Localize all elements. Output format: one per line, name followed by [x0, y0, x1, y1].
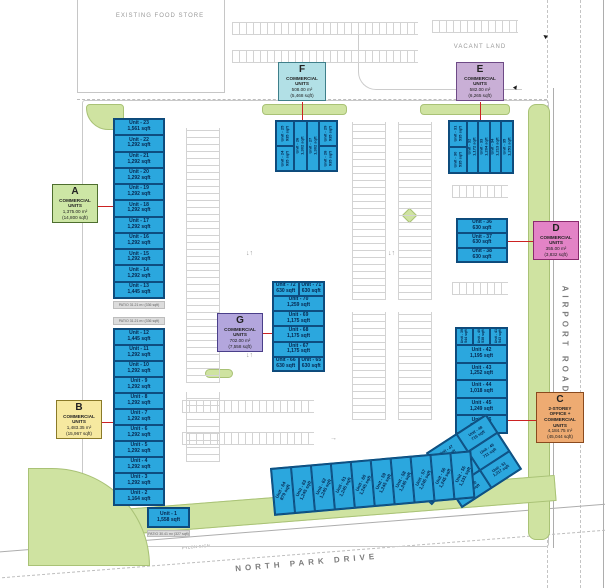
unit-cell: Unit - 66630 sqft [273, 357, 299, 371]
unit-cell: Unit - 38630 sqft [457, 248, 507, 262]
unit-area: 543 sqft [499, 329, 503, 343]
unit-cell: Unit - 351,251 sqft [501, 121, 513, 173]
unit-area: 1,175 sqft [287, 334, 310, 340]
building-e: Unit - 31535 sqft Unit - 30535 sqft Unit… [448, 120, 514, 174]
building-d: Unit - 36630 sqft Unit - 37630 sqft Unit… [456, 218, 508, 263]
legend-block-c: C 2-STOREY OFFICE + COMMERCIAL UNITS 4,1… [536, 392, 584, 443]
building-f: Unit - 25935 sqft Unit - 24935 sqft Unit… [275, 120, 338, 172]
unit-area: 1,164 sqft [127, 497, 150, 503]
unit-cell: Unit - 451,249 sqft [456, 398, 507, 416]
unit-cell: Unit - 19 1,292 sqft [114, 184, 164, 200]
unit-area: 630 sqft [302, 364, 321, 370]
unit-cell: Unit - 341,213 sqft [490, 121, 502, 173]
unit-cell: Unit - 331,204 sqft [478, 121, 490, 173]
unit-cell: Unit - 71630 sqft [299, 282, 325, 296]
parking-row [352, 312, 386, 420]
legend-block-f: F COMMERCIAL UNITS 508.00 m² (5,468 sqft… [278, 62, 326, 101]
unit-area: 1,302 sqft [313, 137, 318, 155]
legend-area-sqft: (7,558 sqft) [219, 344, 261, 350]
unit-area: 1,249 sqft [470, 407, 493, 413]
parking-row [182, 432, 314, 445]
leader-line-d [508, 241, 533, 242]
legend-block-g: G COMMERCIAL UNITS 702.00 m² (7,558 sqft… [217, 313, 263, 352]
unit-cell: Unit - 28935 sqft [319, 146, 337, 171]
vacant-land-label: VACANT LAND [425, 44, 535, 50]
block-letter: A [54, 187, 96, 198]
unit-cell: Unit - 681,175 sqft [273, 326, 324, 341]
parking-row [186, 128, 220, 383]
leader-line-c [508, 420, 536, 421]
unit-area: 1,195 sqft [470, 354, 493, 360]
unit-area: 1,292 sqft [127, 192, 150, 198]
legend-block-e: E COMMERCIAL UNITS 582.00 m² (6,265 sqft… [456, 62, 504, 101]
unit-area: 1,292 sqft [127, 241, 150, 247]
unit-cell: Unit - 25935 sqft [276, 121, 294, 146]
unit-area: 1,561 sqft [127, 127, 150, 133]
unit-area: 935 sqft [285, 126, 290, 142]
turn-arrow-icon: ▲ [541, 32, 551, 42]
parking-row [182, 400, 314, 413]
unit-cell: Unit - 16 1,292 sqft [114, 233, 164, 249]
unit-area: 1,292 sqft [127, 257, 150, 263]
unit-area: 1,292 sqft [127, 353, 150, 359]
unit-area: 1,018 sqft [470, 389, 493, 395]
north-park-drive-label: NORTH PARK DRIVE [235, 552, 379, 573]
unit-cell: Unit - 12 1,445 sqft [114, 329, 164, 345]
unit-area: 544 sqft [465, 329, 469, 343]
unit-area: 1,558 sqft [157, 518, 180, 524]
unit-area: 1,172 sqft [473, 138, 478, 156]
legend-block-d: D COMMERCIAL UNITS 355.00 m² (3,832 sqft… [533, 221, 579, 260]
leader-line-a [98, 206, 113, 207]
unit-area: 630 sqft [302, 289, 321, 295]
airport-road-curb [603, 0, 604, 588]
unit-area: 538 sqft [482, 329, 486, 343]
unit-cell: Unit - 36630 sqft [457, 219, 507, 233]
unit-area: 1,292 sqft [127, 274, 150, 280]
existing-food-store-label: EXISTING FOOD STORE [100, 13, 220, 19]
unit-cell: Unit - 65630 sqft [299, 357, 325, 371]
unit-area: 1,302 sqft [300, 137, 305, 155]
unit-cell: Unit - 37630 sqft [457, 233, 507, 247]
unit-area: 1,252 sqft [470, 371, 493, 377]
unit-area: 630 sqft [276, 289, 295, 295]
parking-row [352, 122, 386, 300]
block-letter: E [458, 65, 502, 76]
unit-cell: Unit - 24935 sqft [276, 146, 294, 171]
aisle-arrow-icon: ↓↑ [246, 352, 253, 359]
unit-area: 535 sqft [458, 152, 463, 168]
unit-cell: Unit - 17 1,292 sqft [114, 217, 164, 233]
unit-cell: Unit - 441,018 sqft [456, 380, 507, 398]
legend-area-sqft: (3,832 sqft) [535, 252, 577, 258]
unit-area: 1,204 sqft [484, 138, 489, 156]
building-block-a: Unit - 23 1,561 sqft Unit - 22 1,292 sqf… [113, 118, 165, 299]
block-letter: F [280, 65, 324, 76]
unit-area: 1,251 sqft [507, 138, 512, 156]
unit-cell: Unit - 261,302 sqft [294, 121, 307, 171]
unit-area: 1,175 sqft [287, 319, 310, 325]
unit-cell: Unit - 321,172 sqft [467, 121, 479, 173]
aisle-arrow-icon: ↓↑ [246, 250, 253, 257]
unit-cell: Unit - 5 1,292 sqft [114, 441, 164, 457]
parking-row [452, 282, 508, 295]
unit-cell: Unit - 22 1,292 sqft [114, 135, 164, 151]
building-block-b: Unit - 12 1,445 sqft Unit - 11 1,292 sqf… [113, 328, 165, 506]
unit-cell: Unit - 10 1,292 sqft [114, 361, 164, 377]
unit-cell: Unit - 9 1,292 sqft [114, 377, 164, 393]
legend-area-sqft: (5,468 sqft) [280, 93, 324, 99]
unit-area: 630 sqft [473, 226, 492, 232]
unit-area: 1,292 sqft [127, 465, 150, 471]
leader-line-f [302, 102, 303, 120]
unit-area: 1,292 sqft [127, 385, 150, 391]
block-letter: C [538, 395, 582, 406]
block-letter: D [535, 224, 577, 235]
unit-area: 1,292 sqft [127, 433, 150, 439]
unit-area: 1,292 sqft [127, 401, 150, 407]
unit-area: 630 sqft [473, 255, 492, 261]
unit-cell: Unit - 431,252 sqft [456, 363, 507, 381]
landscape-area [262, 104, 347, 115]
unit-cell: Unit - 40538 sqft [473, 328, 490, 345]
unit-cell: Unit - 39544 sqft [456, 328, 473, 345]
unit-cell: Unit - 18 1,292 sqft [114, 200, 164, 216]
unit-cell: Unit - 13 1,445 sqft [114, 282, 164, 298]
block-letter: G [219, 316, 261, 327]
building-g: Unit - 72630 sqft Unit - 71630 sqft Unit… [272, 281, 325, 372]
unit-area: 1,292 sqft [127, 417, 150, 423]
legend-area-sqft: (6,265 sqft) [458, 93, 502, 99]
unit-cell: Unit - 55 1,131 sqft [450, 451, 474, 499]
unit-cell: Unit - 701,259 sqft [273, 296, 324, 311]
airport-road-centerline [580, 0, 581, 588]
unit-area: 1,445 sqft [127, 337, 150, 343]
unit-area: 935 sqft [328, 126, 333, 142]
unit-cell: Unit - 41543 sqft [490, 328, 507, 345]
unit-area: 1,292 sqft [127, 481, 150, 487]
landscape-area [420, 104, 510, 115]
legend-block-a: A COMMERCIAL UNITS 1,375.00 m² (14,800 s… [52, 184, 98, 223]
aisle-arrow-icon: → [330, 435, 337, 442]
unit-area: 935 sqft [328, 151, 333, 167]
unit-area: 1,292 sqft [127, 208, 150, 214]
unit-area: 630 sqft [276, 364, 295, 370]
unit-area: 1,213 sqft [496, 138, 501, 156]
legend-area-sqft: (14,800 sqft) [54, 215, 96, 221]
unit-cell: Unit - 8 1,292 sqft [114, 393, 164, 409]
unit-area: 1,292 sqft [127, 160, 150, 166]
unit-cell: Unit - 20 1,292 sqft [114, 168, 164, 184]
unit-cell: Unit - 14 1,292 sqft [114, 265, 164, 281]
patio-strip: PATIO 31.21 m² (336 sqft) [113, 317, 165, 325]
unit-cell: Unit - 11 1,292 sqft [114, 345, 164, 361]
unit-cell: Unit - 1 1,558 sqft [148, 508, 189, 527]
legend-area-sqft: (45,044 sqft) [538, 434, 582, 440]
unit-cell: Unit - 30535 sqft [449, 147, 467, 173]
unit-cell: Unit - 671,175 sqft [273, 342, 324, 357]
leader-line-g [263, 333, 272, 334]
unit-cell: Unit - 23 1,561 sqft [114, 119, 164, 135]
unit-area: 535 sqft [458, 126, 463, 142]
unit-cell: Unit - 2 1,164 sqft [114, 489, 164, 505]
unit-cell: Unit - 29935 sqft [319, 121, 337, 146]
unit-area: 1,259 sqft [287, 303, 310, 309]
unit-cell: Unit - 4 1,292 sqft [114, 457, 164, 473]
parking-row [398, 122, 432, 300]
unit-area: 935 sqft [285, 151, 290, 167]
unit-cell: Unit - 421,195 sqft [456, 345, 507, 363]
unit-cell: Unit - 7 1,292 sqft [114, 409, 164, 425]
parking-row [452, 185, 508, 198]
unit-cell: Unit - 15 1,292 sqft [114, 249, 164, 265]
legend-area-sqft: (15,967 sqft) [58, 431, 100, 437]
parking-row [432, 20, 518, 33]
leader-line-e [480, 102, 481, 120]
legend-block-b: B COMMERCIAL UNITS 1,483.35 m² (15,967 s… [56, 400, 102, 439]
unit-area: 1,292 sqft [127, 176, 150, 182]
unit-cell: Unit - 3 1,292 sqft [114, 473, 164, 489]
unit-area: 1,292 sqft [127, 225, 150, 231]
patio-strip: PATIO 31.21 m² (336 sqft) [113, 301, 165, 309]
unit-cell: Unit - 21 1,292 sqft [114, 152, 164, 168]
building-block-b-unit1: Unit - 1 1,558 sqft [147, 507, 190, 528]
unit-area: 630 sqft [473, 240, 492, 246]
site-plan-canvas: EXISTING FOOD STORE VACANT LAND AIRPORT … [0, 0, 605, 588]
legend-line: COMMERCIAL [538, 417, 582, 423]
unit-cell: Unit - 72630 sqft [273, 282, 299, 296]
unit-area: 1,175 sqft [287, 349, 310, 355]
patio-strip: PATIO 30.41 m² (327 sqft) [147, 530, 190, 537]
parking-row [232, 22, 418, 35]
unit-cell: Unit - 691,175 sqft [273, 311, 324, 326]
aisle-arrow-icon: ↓↑ [388, 250, 395, 257]
block-letter: B [58, 403, 100, 414]
unit-cell: Unit - 271,302 sqft [307, 121, 320, 171]
unit-cell: Unit - 6 1,292 sqft [114, 425, 164, 441]
unit-cell: Unit - 31535 sqft [449, 121, 467, 147]
leader-line-b [102, 422, 113, 423]
unit-area: 1,445 sqft [127, 290, 150, 296]
parking-row [398, 312, 432, 420]
unit-area: 1,292 sqft [127, 143, 150, 149]
unit-area: 1,292 sqft [127, 369, 150, 375]
unit-area: 1,292 sqft [127, 449, 150, 455]
